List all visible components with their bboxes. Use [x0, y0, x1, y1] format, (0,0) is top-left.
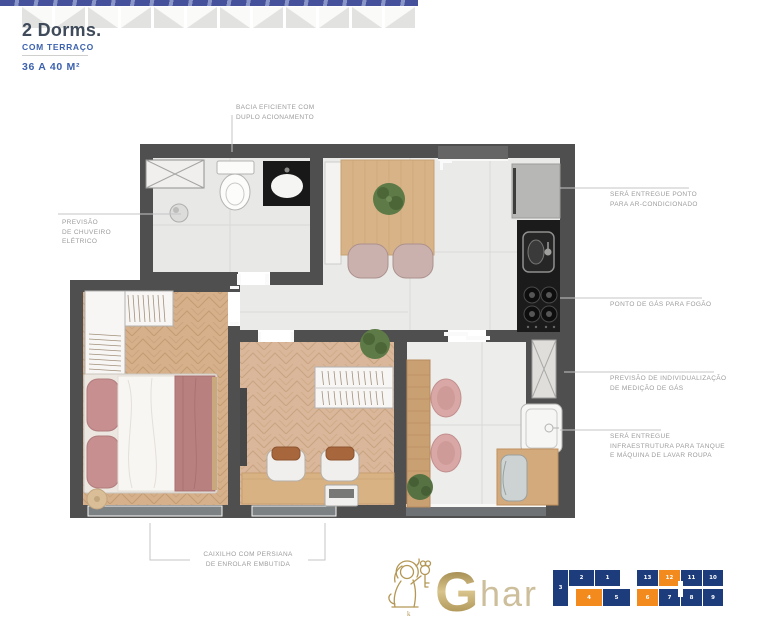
note-line: DE CHUVEIRO — [62, 228, 111, 238]
terrace-chair — [431, 379, 461, 417]
keyplan-unit: 11 — [681, 570, 702, 586]
keyplan-unit: 8 — [681, 589, 702, 606]
terrace-chair — [431, 434, 461, 472]
keyplan-unit-highlighted: 6 — [637, 589, 658, 606]
note-gas-metering: PREVISÃO DE INDIVIDUALIZAÇÃO DE MEDIÇÃO … — [610, 374, 726, 393]
note-line: CAIXILHO COM PERSIANA — [185, 550, 311, 560]
shower-head — [170, 204, 188, 222]
note-line: PREVISÃO DE INDIVIDUALIZAÇÃO — [610, 374, 726, 384]
note-line: DE MEDIÇÃO DE GÁS — [610, 384, 726, 394]
dining-chair — [393, 244, 433, 278]
window — [88, 506, 222, 516]
note-dual-flush-toilet: BACIA EFICIENTE COM DUPLO ACIONAMENTO — [236, 103, 315, 122]
lion-with-key-icon — [389, 559, 431, 607]
note-electric-shower: PREVISÃO DE CHUVEIRO ELÉTRICO — [62, 218, 111, 247]
note-line: SERÁ ENTREGUE PONTO — [610, 190, 698, 200]
washing-machine — [501, 455, 527, 501]
kitchen-sink — [523, 232, 554, 272]
note-line: SERÁ ENTREGUE — [610, 432, 725, 442]
keyplan-unit: 10 — [703, 570, 723, 586]
sideboard — [325, 162, 341, 264]
exhaust-shaft — [146, 160, 204, 188]
note-window-shutter: CAIXILHO COM PERSIANA DE ENROLAR EMBUTID… — [185, 550, 311, 569]
double-bed — [84, 374, 217, 493]
keyplan-unit: 13 — [637, 570, 658, 586]
keyplan-unit: 7 — [659, 589, 680, 606]
entry-recess — [438, 146, 508, 160]
plant — [360, 329, 390, 359]
note-line: ELÉTRICO — [62, 237, 111, 247]
note-line: PREVISÃO — [62, 218, 111, 228]
building-key-plan: 3 2 1 4 5 13 12 11 10 6 7 8 9 — [553, 569, 723, 608]
note-line: PONTO DE GÁS PARA FOGÃO — [610, 300, 711, 310]
note-line: INFRAESTRUTURA PARA TANQUE — [610, 442, 725, 452]
plant — [407, 474, 433, 500]
note-line: PARA AR-CONDICIONADO — [610, 200, 698, 210]
laptop — [325, 485, 358, 506]
logo-mark-letter: k — [407, 610, 411, 618]
plant — [373, 183, 405, 215]
desk — [242, 473, 394, 504]
note-air-conditioning: SERÁ ENTREGUE PONTO PARA AR-CONDICIONADO — [610, 190, 698, 209]
laundry-tank — [521, 404, 562, 453]
note-gas-point: PONTO DE GÁS PARA FOGÃO — [610, 300, 711, 310]
note-line: E MÁQUINA DE LAVAR ROUPA — [610, 451, 725, 461]
dining-chair — [348, 244, 388, 278]
brand-logo: k G har — [380, 554, 555, 624]
note-line: BACIA EFICIENTE COM — [236, 103, 315, 113]
desk-chair — [321, 447, 359, 481]
gas-shaft — [532, 340, 556, 398]
refrigerator — [512, 164, 560, 218]
window — [252, 506, 336, 516]
keyplan-core — [678, 581, 683, 597]
desk-chair — [267, 447, 305, 481]
keyplan-unit: 9 — [703, 589, 723, 606]
keyplan-unit: 5 — [603, 589, 630, 606]
pouf — [87, 489, 107, 509]
washbasin-counter — [263, 161, 310, 206]
windows — [88, 504, 546, 516]
keyplan-unit-highlighted: 12 — [659, 570, 680, 586]
brochure-page: 2 Dorms. COM TERRAÇO 36 A 40 M² — [0, 0, 768, 629]
brand-name-rest: har — [480, 573, 538, 614]
note-line: DE ENROLAR EMBUTIDA — [185, 560, 311, 570]
brand-initial: G — [435, 560, 479, 623]
note-laundry-infrastructure: SERÁ ENTREGUE INFRAESTRUTURA PARA TANQUE… — [610, 432, 725, 461]
keyplan-unit: 3 — [553, 570, 568, 606]
leader-line — [150, 523, 190, 560]
keyplan-unit-highlighted: 4 — [576, 589, 602, 606]
note-line: DUPLO ACIONAMENTO — [236, 113, 315, 123]
terrace-rail — [406, 507, 546, 516]
floor-plan — [0, 0, 768, 629]
keyplan-unit: 1 — [595, 570, 620, 586]
sliding-door — [240, 388, 247, 466]
wardrobe — [315, 367, 393, 408]
keyplan-unit: 2 — [569, 570, 594, 586]
